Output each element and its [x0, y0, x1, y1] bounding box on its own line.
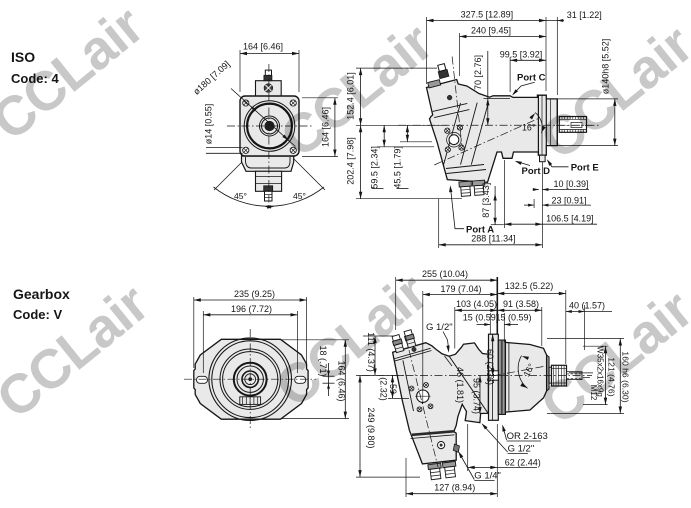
svg-text:240 [9.45]: 240 [9.45] [471, 26, 511, 36]
svg-text:106.5 [4.19]: 106.5 [4.19] [546, 214, 594, 224]
svg-text:62 (2.44): 62 (2.44) [505, 457, 541, 467]
svg-text:202.4 [7.98]: 202.4 [7.98] [346, 137, 356, 185]
svg-text:45°: 45° [234, 191, 247, 201]
svg-text:327.5 [12.89]: 327.5 [12.89] [461, 10, 514, 20]
svg-text:Port C: Port C [517, 72, 546, 83]
svg-text:127 (8.94): 127 (8.94) [434, 483, 475, 493]
svg-text:45.5 [1.79]: 45.5 [1.79] [392, 146, 402, 189]
svg-text:15 (0.59): 15 (0.59) [463, 312, 499, 322]
svg-text:Code: V: Code: V [13, 307, 62, 322]
svg-text:91 (3.58): 91 (3.58) [503, 299, 539, 309]
svg-text:CCLair: CCLair [0, 0, 155, 152]
svg-text:CCLair: CCLair [529, 278, 691, 436]
svg-text:255 (10.04): 255 (10.04) [422, 269, 468, 279]
svg-text:10 [0.39]: 10 [0.39] [554, 179, 589, 189]
svg-text:45°: 45° [293, 191, 306, 201]
svg-text:31 [1.22]: 31 [1.22] [567, 10, 602, 20]
svg-text:Gearbox: Gearbox [13, 286, 70, 302]
svg-text:15 (0.59): 15 (0.59) [495, 312, 531, 322]
svg-text:23 [0.91]: 23 [0.91] [552, 195, 587, 205]
svg-text:87 [3.43]: 87 [3.43] [481, 183, 491, 218]
svg-text:OR 2-163: OR 2-163 [507, 431, 548, 442]
svg-text:103 (4.05): 103 (4.05) [456, 299, 497, 309]
svg-text:Port D: Port D [522, 166, 551, 177]
svg-text:249 (9.80): 249 (9.80) [366, 407, 376, 448]
svg-text:60 (2.36): 60 (2.36) [485, 349, 495, 385]
svg-text:G 1/4": G 1/4" [474, 470, 501, 481]
svg-text:59.5 [2.34]: 59.5 [2.34] [370, 146, 380, 189]
svg-text:179 (7.04): 179 (7.04) [440, 284, 481, 294]
svg-text:95 (3.74): 95 (3.74) [472, 378, 482, 414]
svg-text:99.5 [3.92]: 99.5 [3.92] [500, 49, 543, 59]
svg-text:(2.32): (2.32) [379, 377, 389, 401]
svg-text:164 [6.46]: 164 [6.46] [243, 42, 283, 52]
svg-text:70 [2.76]: 70 [2.76] [473, 55, 483, 90]
svg-text:196 (7.72): 196 (7.72) [231, 304, 272, 314]
svg-text:G 1/2": G 1/2" [426, 322, 453, 333]
svg-text:132.5 (5.22): 132.5 (5.22) [505, 281, 554, 291]
svg-text:288 [11.34]: 288 [11.34] [471, 234, 515, 244]
svg-text:46 (1.81): 46 (1.81) [455, 367, 465, 403]
svg-text:ø14 [0.55]: ø14 [0.55] [204, 104, 214, 145]
svg-text:CCLair: CCLair [529, 13, 691, 171]
svg-text:ø180 [7.09]: ø180 [7.09] [191, 59, 232, 97]
svg-text:G 1/2": G 1/2" [508, 444, 535, 455]
svg-text:40 (1.57): 40 (1.57) [569, 301, 605, 311]
svg-text:235 (9.25): 235 (9.25) [234, 289, 275, 299]
svg-text:CCLair: CCLair [269, 11, 444, 169]
